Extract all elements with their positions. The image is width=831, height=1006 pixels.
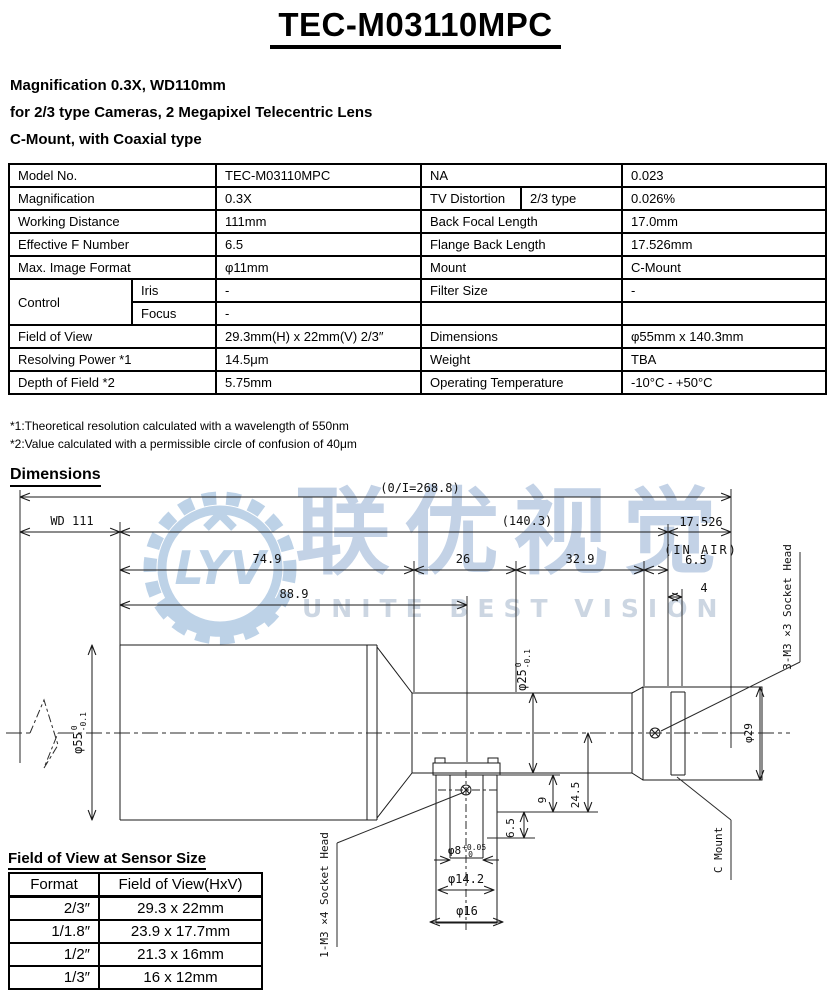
table-row: Working Distance 111mm Back Focal Length… bbox=[9, 210, 826, 233]
description-line: for 2/3 type Cameras, 2 Megapixel Telece… bbox=[10, 99, 372, 126]
fov-value: 21.3 x 16mm bbox=[99, 943, 262, 966]
table-row: Focus - bbox=[9, 302, 826, 325]
table-row: 1/2″ 21.3 x 16mm bbox=[9, 943, 262, 966]
table-row: Control Iris - Filter Size - bbox=[9, 279, 826, 302]
spec-value: 111mm bbox=[216, 210, 421, 233]
footnote-2: *2:Value calculated with a permissible c… bbox=[10, 435, 357, 453]
table-row: 2/3″ 29.3 x 22mm bbox=[9, 897, 262, 921]
spec-value: - bbox=[216, 279, 421, 302]
spec-label: Weight bbox=[421, 348, 622, 371]
spec-value: -10°C - +50°C bbox=[622, 371, 826, 394]
dim-6-5-top-label: 6.5 bbox=[685, 553, 707, 567]
spec-value: 5.75mm bbox=[216, 371, 421, 394]
spec-value: 0.3X bbox=[216, 187, 421, 210]
footnote-1: *1:Theoretical resolution calculated wit… bbox=[10, 417, 357, 435]
spec-label: Mount bbox=[421, 256, 622, 279]
spec-label bbox=[421, 302, 622, 325]
spec-value: φ11mm bbox=[216, 256, 421, 279]
spec-label: TV Distortion bbox=[421, 187, 521, 210]
port-screw-label: 1-M3 ×4 Socket Head bbox=[318, 832, 331, 958]
table-row: 1/1.8″ 23.9 x 17.7mm bbox=[9, 920, 262, 943]
fov-format: 1/3″ bbox=[9, 966, 99, 989]
fov-table-heading: Field of View at Sensor Size bbox=[8, 850, 206, 870]
spec-value: - bbox=[622, 279, 826, 302]
spec-value: 14.5μm bbox=[216, 348, 421, 371]
spec-value bbox=[622, 302, 826, 325]
spec-value: 17.526mm bbox=[622, 233, 826, 256]
dim-dia14-2-label: φ14.2 bbox=[448, 872, 484, 886]
spec-value: - bbox=[216, 302, 421, 325]
dim-9-label: 9 bbox=[536, 797, 549, 804]
spec-sublabel: Focus bbox=[132, 302, 216, 325]
dim-overall-label: (0/I=268.8) bbox=[380, 481, 459, 495]
description-line: C-Mount, with Coaxial type bbox=[10, 126, 372, 153]
spec-label: Back Focal Length bbox=[421, 210, 622, 233]
spec-label: Model No. bbox=[9, 164, 216, 187]
table-row: Model No. TEC-M03110MPC NA 0.023 bbox=[9, 164, 826, 187]
spec-sublabel: Iris bbox=[132, 279, 216, 302]
dim-flange-back-label: 17.526 bbox=[679, 515, 722, 529]
spec-value: 0.026% bbox=[622, 187, 826, 210]
description-line: Magnification 0.3X, WD110mm bbox=[10, 72, 372, 99]
datasheet-page: TEC-M03110MPC Magnification 0.3X, WD110m… bbox=[0, 0, 831, 1006]
spec-value: 29.3mm(H) x 22mm(V) 2/3″ bbox=[216, 325, 421, 348]
dim-dia16-label: φ16 bbox=[456, 904, 478, 918]
fov-format: 1/2″ bbox=[9, 943, 99, 966]
c-mount-label: C Mount bbox=[712, 827, 725, 873]
spec-value: TBA bbox=[622, 348, 826, 371]
fov-format: 2/3″ bbox=[9, 897, 99, 921]
spec-label: Dimensions bbox=[421, 325, 622, 348]
lens-description: Magnification 0.3X, WD110mm for 2/3 type… bbox=[10, 72, 372, 153]
spec-label: NA bbox=[421, 164, 622, 187]
spec-value: 0.023 bbox=[622, 164, 826, 187]
dim-dia8-label: φ8+0.050 bbox=[448, 843, 487, 859]
table-row: Effective F Number 6.5 Flange Back Lengt… bbox=[9, 233, 826, 256]
dim-24-5-label: 24.5 bbox=[569, 782, 582, 809]
dim-32-9-label: 32.9 bbox=[566, 552, 595, 566]
dim-74-9-label: 74.9 bbox=[253, 552, 282, 566]
fov-value: 16 x 12mm bbox=[99, 966, 262, 989]
spec-label: Field of View bbox=[9, 325, 216, 348]
table-row: Magnification 0.3X TV Distortion 2/3 typ… bbox=[9, 187, 826, 210]
fov-value: 29.3 x 22mm bbox=[99, 897, 262, 921]
table-row: 1/3″ 16 x 12mm bbox=[9, 966, 262, 989]
spec-value: TEC-M03110MPC bbox=[216, 164, 421, 187]
spec-sublabel: 2/3 type bbox=[521, 187, 622, 210]
spec-label: Flange Back Length bbox=[421, 233, 622, 256]
spec-label: Max. Image Format bbox=[9, 256, 216, 279]
dim-dia29-label: φ29 bbox=[742, 723, 755, 743]
title-wrap: TEC-M03110MPC bbox=[0, 6, 831, 49]
spec-label: Control bbox=[9, 279, 132, 325]
fov-value: 23.9 x 17.7mm bbox=[99, 920, 262, 943]
dim-wd-label: WD 111 bbox=[50, 514, 93, 528]
fov-col-header: Format bbox=[9, 873, 99, 897]
dim-4-label: 4 bbox=[700, 581, 707, 595]
dim-body-length-label: (140.3) bbox=[502, 514, 553, 528]
table-row: Resolving Power *1 14.5μm Weight TBA bbox=[9, 348, 826, 371]
fov-col-header: Field of View(HxV) bbox=[99, 873, 262, 897]
dim-dia55-label: φ550-0.1 bbox=[70, 712, 88, 754]
footnotes: *1:Theoretical resolution calculated wit… bbox=[10, 417, 357, 453]
spec-label: Working Distance bbox=[9, 210, 216, 233]
spec-value: 17.0mm bbox=[622, 210, 826, 233]
table-row: Format Field of View(HxV) bbox=[9, 873, 262, 897]
page-title: TEC-M03110MPC bbox=[270, 6, 560, 49]
dim-26-label: 26 bbox=[456, 552, 470, 566]
table-row: Depth of Field *2 5.75mm Operating Tempe… bbox=[9, 371, 826, 394]
spec-label: Magnification bbox=[9, 187, 216, 210]
spec-label: Filter Size bbox=[421, 279, 622, 302]
table-row: Field of View 29.3mm(H) x 22mm(V) 2/3″ D… bbox=[9, 325, 826, 348]
rear-screw-label: 3-M3 ×3 Socket Head bbox=[781, 544, 794, 670]
spec-value: C-Mount bbox=[622, 256, 826, 279]
dim-dia25-label: φ250-0.1 bbox=[514, 649, 532, 691]
spec-table: Model No. TEC-M03110MPC NA 0.023 Magnifi… bbox=[8, 163, 827, 395]
spec-label: Resolving Power *1 bbox=[9, 348, 216, 371]
spec-value: φ55mm x 140.3mm bbox=[622, 325, 826, 348]
table-row: Max. Image Format φ11mm Mount C-Mount bbox=[9, 256, 826, 279]
fov-table: Format Field of View(HxV) 2/3″ 29.3 x 22… bbox=[8, 872, 263, 990]
spec-label: Operating Temperature bbox=[421, 371, 622, 394]
dim-6-5-port-label: 6.5 bbox=[504, 818, 517, 838]
spec-value: 6.5 bbox=[216, 233, 421, 256]
fov-format: 1/1.8″ bbox=[9, 920, 99, 943]
dim-88-9-label: 88.9 bbox=[280, 587, 309, 601]
spec-label: Effective F Number bbox=[9, 233, 216, 256]
spec-label: Depth of Field *2 bbox=[9, 371, 216, 394]
